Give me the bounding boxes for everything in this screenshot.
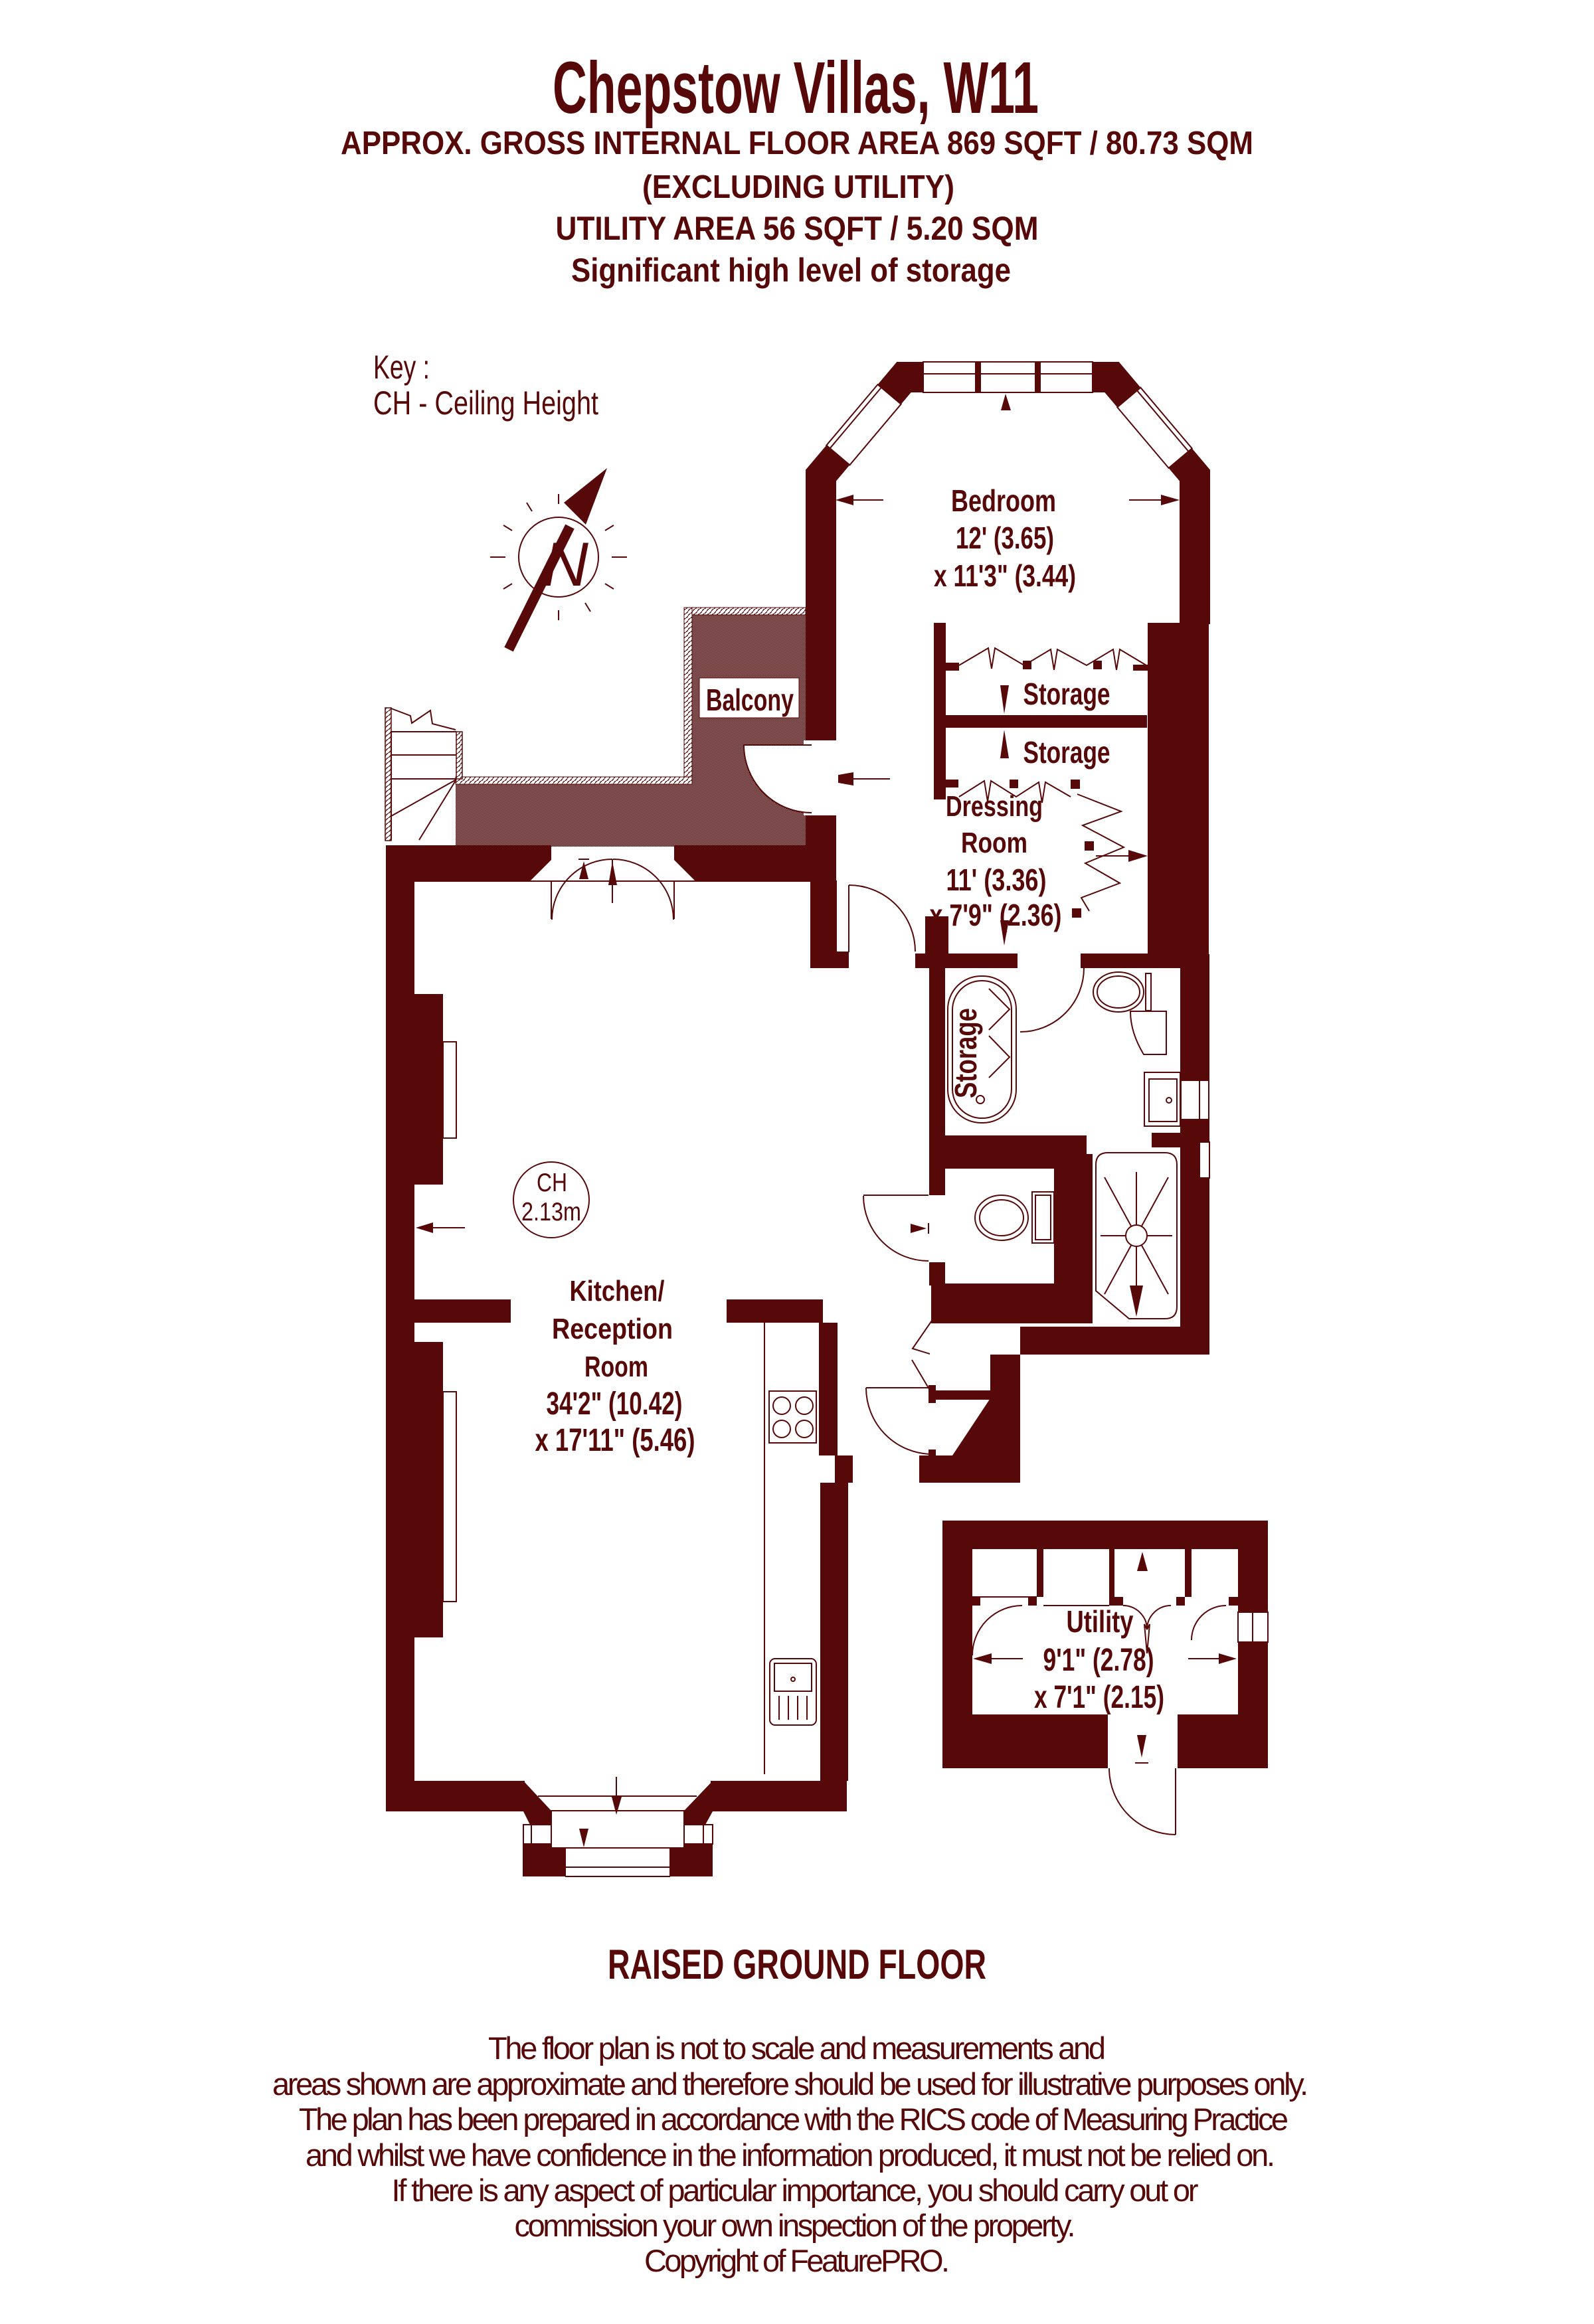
svg-text:N: N — [543, 529, 588, 599]
svg-text:Bedroom: Bedroom — [951, 483, 1056, 518]
svg-text:12' (3.65): 12' (3.65) — [956, 521, 1054, 555]
svg-text:and whilst we have confidence: and whilst we have confidence in the inf… — [306, 2137, 1275, 2173]
svg-text:Kitchen/: Kitchen/ — [570, 1275, 665, 1307]
svg-text:The floor plan is not to scale: The floor plan is not to scale and measu… — [488, 2031, 1106, 2066]
svg-text:areas shown are approximate an: areas shown are approximate and therefor… — [272, 2066, 1308, 2102]
svg-text:If there is any aspect of part: If there is any aspect of particular imp… — [392, 2173, 1199, 2208]
svg-text:RAISED GROUND FLOOR: RAISED GROUND FLOOR — [608, 1942, 986, 1988]
svg-text:Key :: Key : — [373, 349, 430, 386]
svg-text:Room: Room — [584, 1351, 648, 1383]
svg-text:The plan has been prepared in: The plan has been prepared in accordance… — [299, 2102, 1288, 2137]
svg-text:commission your own inspection: commission your own inspection of the pr… — [515, 2208, 1076, 2243]
svg-text:Dressing: Dressing — [946, 790, 1043, 823]
svg-text:(EXCLUDING UTILITY): (EXCLUDING UTILITY) — [642, 169, 954, 205]
svg-text:Storage: Storage — [1023, 735, 1110, 770]
svg-text:x 7'9" (2.36): x 7'9" (2.36) — [930, 898, 1062, 932]
svg-text:9'1" (2.78): 9'1" (2.78) — [1043, 1643, 1154, 1678]
svg-text:x 17'11" (5.46): x 17'11" (5.46) — [535, 1423, 695, 1458]
svg-text:2.13m: 2.13m — [521, 1198, 581, 1226]
svg-text:Room: Room — [961, 827, 1027, 859]
svg-text:Reception: Reception — [552, 1313, 673, 1345]
svg-text:Chepstow Villas, W11: Chepstow Villas, W11 — [553, 47, 1039, 129]
svg-text:Significant high level of stor: Significant high level of storage — [571, 252, 1011, 289]
svg-text:CH: CH — [537, 1169, 567, 1197]
svg-text:APPROX. GROSS INTERNAL FLOOR A: APPROX. GROSS INTERNAL FLOOR AREA 869 SQ… — [341, 125, 1253, 161]
svg-text:UTILITY AREA 56 SQFT / 5.20 SQ: UTILITY AREA 56 SQFT / 5.20 SQM — [556, 210, 1039, 247]
svg-text:11' (3.36): 11' (3.36) — [946, 863, 1047, 897]
svg-text:Utility: Utility — [1067, 1604, 1134, 1639]
svg-text:Storage: Storage — [1023, 677, 1110, 711]
svg-text:34'2" (10.42): 34'2" (10.42) — [547, 1386, 683, 1422]
svg-text:x 11'3" (3.44): x 11'3" (3.44) — [934, 558, 1076, 593]
svg-text:Storage: Storage — [948, 1008, 983, 1098]
svg-text:Copyright of FeaturePRO.: Copyright of FeaturePRO. — [644, 2243, 950, 2278]
svg-text:Balcony: Balcony — [706, 683, 794, 717]
svg-text:CH - Ceiling Height: CH - Ceiling Height — [373, 384, 598, 422]
svg-text:x 7'1" (2.15): x 7'1" (2.15) — [1034, 1680, 1164, 1715]
